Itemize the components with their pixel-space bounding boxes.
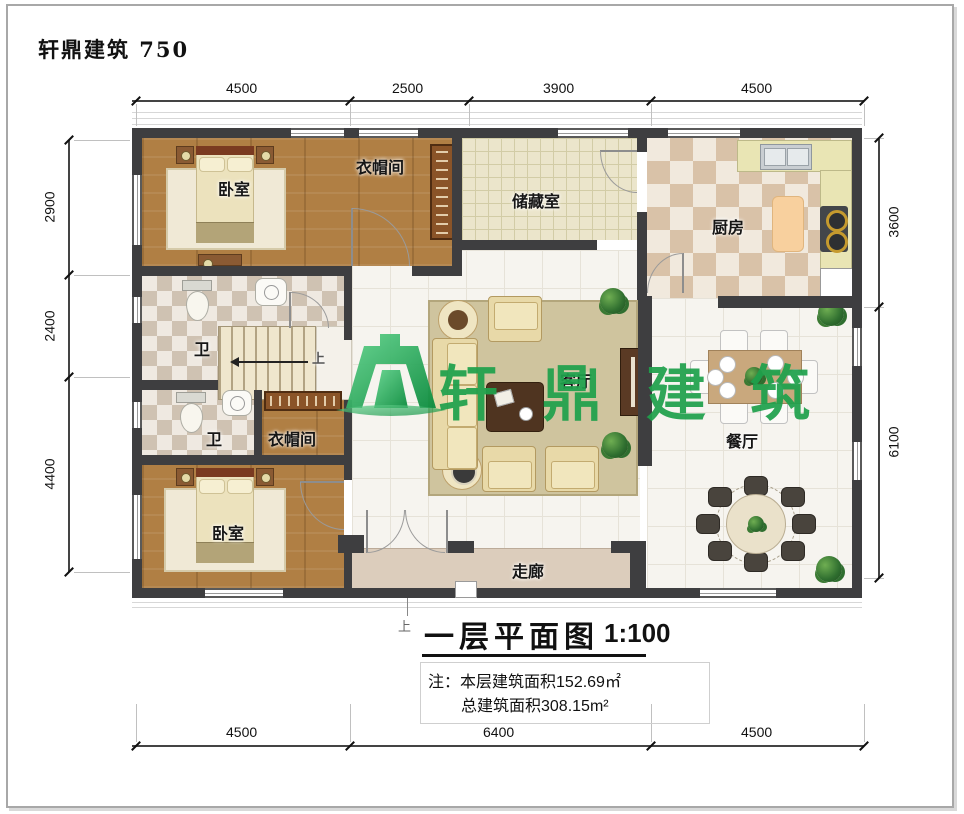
closet-top-wardrobe-icon: [430, 144, 454, 240]
plant-icon: [602, 432, 628, 458]
title-underline: [422, 654, 646, 657]
armchair-bottom-right: [545, 446, 599, 492]
window: [700, 588, 776, 598]
sofa-cushion: [447, 427, 477, 469]
wall-kitchen-south: [718, 296, 862, 308]
wall-kitchen-west-upper: [637, 138, 647, 152]
pillow: [227, 157, 253, 172]
armchair-cushion: [488, 461, 532, 489]
wall-bath-closet: [254, 390, 262, 455]
kitchen-sink-icon: [760, 144, 812, 170]
dim-line-right: [878, 138, 880, 578]
dim-left-3: 4400: [42, 458, 58, 489]
nightstand: [256, 146, 274, 164]
toilet-tank: [176, 392, 206, 403]
note-label: 注：: [428, 674, 460, 691]
closet-mid-label: 衣帽间: [268, 426, 316, 450]
stairs-arrowhead: [230, 357, 239, 367]
closet-top-label: 衣帽间: [356, 154, 404, 178]
eave-line: [132, 124, 862, 125]
nightstand: [176, 146, 194, 164]
table-plant-icon: [748, 516, 764, 532]
round-chair: [696, 514, 720, 534]
wall-bath-divider: [142, 380, 218, 390]
bed-top-headboard: [196, 146, 254, 155]
storage-label: 储藏室: [512, 188, 560, 212]
eave-line: [132, 602, 862, 603]
wall-bedroom-top-south: [142, 266, 352, 276]
wall-bedroom-top-south2: [412, 266, 462, 276]
dresser: [198, 254, 242, 266]
wall-bedroom-bottom-east1: [344, 465, 352, 480]
entrance-pier-right: [446, 541, 474, 553]
sink-basin: [787, 148, 809, 166]
eave-line: [132, 607, 862, 608]
kitchen-label: 厨房: [712, 214, 744, 238]
plan-title: 一层平面图: [424, 612, 599, 656]
dining-table-round: [726, 494, 786, 554]
plant-icon: [816, 556, 842, 582]
dim-left-2: 2400: [42, 310, 58, 341]
bed-bottom-headboard: [196, 468, 254, 477]
armchair-cushion: [494, 302, 538, 330]
entry-up-label: 上: [398, 616, 411, 635]
pillow: [227, 479, 253, 494]
window: [668, 128, 740, 138]
dim-top-2: 2500: [392, 80, 423, 96]
entrance-pier-left: [338, 535, 364, 553]
note-line-1: 注：本层建筑面积152.69㎡: [428, 668, 621, 692]
dim-line-left: [68, 140, 70, 572]
burner: [826, 210, 848, 232]
window: [558, 128, 628, 138]
plan-scale: 1:100: [604, 618, 671, 649]
window: [132, 297, 142, 323]
plant-icon: [600, 288, 626, 314]
armchair-top: [488, 296, 542, 342]
corridor-label: 走廊: [512, 558, 544, 582]
round-chair: [781, 541, 805, 561]
entry-step: [455, 581, 477, 598]
note-line-2: 总建筑面积308.15m²: [461, 692, 609, 716]
wall-bedroom-bottom-north: [142, 455, 352, 465]
corridor-floor: [352, 548, 634, 589]
bath-lower-label: 卫: [206, 426, 222, 450]
eave-line: [132, 112, 862, 113]
window: [132, 495, 142, 559]
dim-right-2: 6100: [886, 426, 902, 457]
sink-upper-icon: [255, 278, 287, 306]
entrance-door-leaf: [446, 510, 448, 553]
window: [291, 128, 344, 138]
wall-storage-south: [452, 240, 597, 250]
burner: [826, 231, 848, 253]
round-chair: [744, 552, 768, 572]
window: [132, 402, 142, 428]
round-chair: [708, 487, 732, 507]
round-chair: [708, 541, 732, 561]
wall-kitchen-west-lower: [637, 212, 647, 300]
nightstand: [256, 468, 274, 486]
dim-right-1: 3600: [886, 206, 902, 237]
bed-top-blanket: [196, 222, 254, 243]
wall-outer-top: [132, 128, 862, 138]
watermark-text: 轩鼎建筑: [438, 346, 854, 433]
pillow: [199, 479, 225, 494]
brand-logo-icon: [332, 330, 450, 422]
brand-title: 轩鼎建筑 750: [38, 34, 189, 64]
stove-icon: [820, 206, 848, 252]
bath-upper-label: 卫: [194, 336, 210, 360]
dim-top-1: 4500: [226, 80, 257, 96]
round-chair: [781, 487, 805, 507]
dim-bottom-2: 6400: [483, 724, 514, 740]
window: [205, 588, 283, 598]
sink-lower-icon: [222, 390, 252, 416]
dim-line-top: [132, 100, 864, 102]
toilet-tank: [182, 280, 212, 291]
armchair-bottom-left: [482, 446, 536, 492]
dim-line-bottom: [132, 745, 864, 747]
window: [359, 128, 418, 138]
nightstand: [176, 468, 194, 486]
floorplan-page: { "brand": {"title": "轩鼎建筑 750"}, "water…: [0, 0, 964, 814]
dim-left-1: 2900: [42, 191, 58, 222]
bedroom-top-label: 卧室: [218, 176, 250, 200]
wall-corridor-dining: [630, 541, 646, 598]
stairs-arrow: [238, 361, 308, 363]
stairs-up-label: 上: [312, 348, 325, 367]
entry-axis-line: [407, 598, 408, 616]
kitchen-island: [772, 196, 804, 252]
dim-top-3: 3900: [543, 80, 574, 96]
window: [852, 442, 862, 480]
bedroom-bottom-label: 卧室: [212, 520, 244, 544]
dim-bottom-3: 4500: [741, 724, 772, 740]
bed-bottom-blanket: [196, 542, 254, 563]
dim-bottom-1: 4500: [226, 724, 257, 740]
dim-top-4: 4500: [741, 80, 772, 96]
closet-mid-wardrobe-icon: [264, 391, 342, 411]
armchair-cushion: [551, 461, 595, 489]
eave-line: [132, 118, 862, 119]
pillow: [199, 157, 225, 172]
round-chair: [792, 514, 816, 534]
sink-basin: [764, 148, 786, 166]
flower-bowl: [448, 310, 468, 330]
round-chair: [744, 476, 768, 496]
window: [132, 175, 142, 245]
